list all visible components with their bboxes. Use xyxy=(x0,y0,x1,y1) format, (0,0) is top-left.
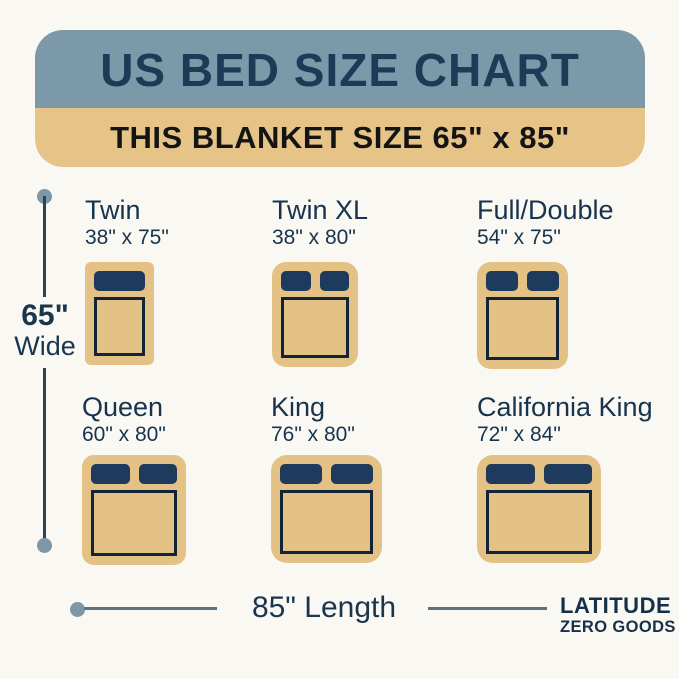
brand-logo: LATITUDE ZERO GOODS xyxy=(560,594,679,636)
bed-size-label: 76" x 80" xyxy=(271,422,382,447)
bed-name-label: Full/Double xyxy=(477,195,614,225)
bed-icon-california-king xyxy=(477,455,601,563)
chart-title: US BED SIZE CHART xyxy=(100,43,580,97)
mattress-sheet xyxy=(91,490,177,556)
bed-icon-queen xyxy=(82,455,186,565)
width-dimension-bottom-dot xyxy=(37,538,52,553)
mattress-sheet xyxy=(486,297,559,360)
pillow-row xyxy=(91,464,177,484)
pillow-row xyxy=(94,271,145,291)
width-dimension-line-upper xyxy=(43,196,46,297)
bed-name-label: California King xyxy=(477,392,653,422)
bed-card-california-king: California King72" x 84" xyxy=(477,392,653,563)
width-value-text: 65" xyxy=(0,299,90,332)
bed-size-label: 38" x 75" xyxy=(85,225,169,250)
bed-card-full-double: Full/Double54" x 75" xyxy=(477,195,614,369)
bed-size-label: 54" x 75" xyxy=(477,225,614,250)
bed-card-twin-xl: Twin XL38" x 80" xyxy=(272,195,368,367)
pillow-icon xyxy=(91,464,130,484)
bed-size-label: 38" x 80" xyxy=(272,225,368,250)
pillow-row xyxy=(486,464,592,484)
chart-title-band: US BED SIZE CHART xyxy=(35,30,645,108)
bed-icon-full-double xyxy=(477,262,568,369)
length-dimension-label: 85" Length xyxy=(215,591,433,625)
mattress-sheet xyxy=(486,490,592,554)
width-dimension-label: 65" Wide xyxy=(0,299,90,361)
length-dimension-line-left xyxy=(84,607,217,610)
bed-size-label: 60" x 80" xyxy=(82,422,186,447)
brand-logo-line1: LATITUDE xyxy=(560,594,679,618)
bed-name-label: Twin XL xyxy=(272,195,368,225)
bed-size-label: 72" x 84" xyxy=(477,422,653,447)
brand-logo-line2: ZERO GOODS xyxy=(560,618,679,636)
chart-header: US BED SIZE CHART THIS BLANKET SIZE 65" … xyxy=(35,30,645,167)
bed-name-label: Queen xyxy=(82,392,186,422)
pillow-icon xyxy=(527,271,559,291)
mattress-sheet xyxy=(280,490,373,554)
bed-icon-twin-xl xyxy=(272,262,358,367)
blanket-size-band: THIS BLANKET SIZE 65" x 85" xyxy=(35,108,645,167)
pillow-icon xyxy=(331,464,373,484)
pillow-icon xyxy=(486,464,535,484)
mattress-sheet xyxy=(94,297,145,356)
length-dimension-left-dot xyxy=(70,602,85,617)
pillow-icon xyxy=(280,464,322,484)
pillow-row xyxy=(280,464,373,484)
bed-card-twin: Twin38" x 75" xyxy=(85,195,169,365)
width-dimension-line-lower xyxy=(43,368,46,545)
bed-icon-king xyxy=(271,455,382,563)
bed-name-label: King xyxy=(271,392,382,422)
bed-icon-twin xyxy=(85,262,154,365)
bed-name-label: Twin xyxy=(85,195,169,225)
mattress-sheet xyxy=(281,297,349,358)
bed-size-chart: US BED SIZE CHART THIS BLANKET SIZE 65" … xyxy=(0,0,679,679)
pillow-icon xyxy=(544,464,593,484)
pillow-icon xyxy=(486,271,518,291)
pillow-icon xyxy=(281,271,311,291)
pillow-row xyxy=(281,271,349,291)
blanket-size-text: THIS BLANKET SIZE 65" x 85" xyxy=(110,120,570,156)
bed-card-queen: Queen60" x 80" xyxy=(82,392,186,565)
pillow-row xyxy=(486,271,559,291)
pillow-icon xyxy=(139,464,178,484)
pillow-icon xyxy=(94,271,145,291)
pillow-icon xyxy=(320,271,350,291)
bed-card-king: King76" x 80" xyxy=(271,392,382,563)
width-unit-text: Wide xyxy=(0,332,90,361)
length-dimension-line-right xyxy=(428,607,547,610)
